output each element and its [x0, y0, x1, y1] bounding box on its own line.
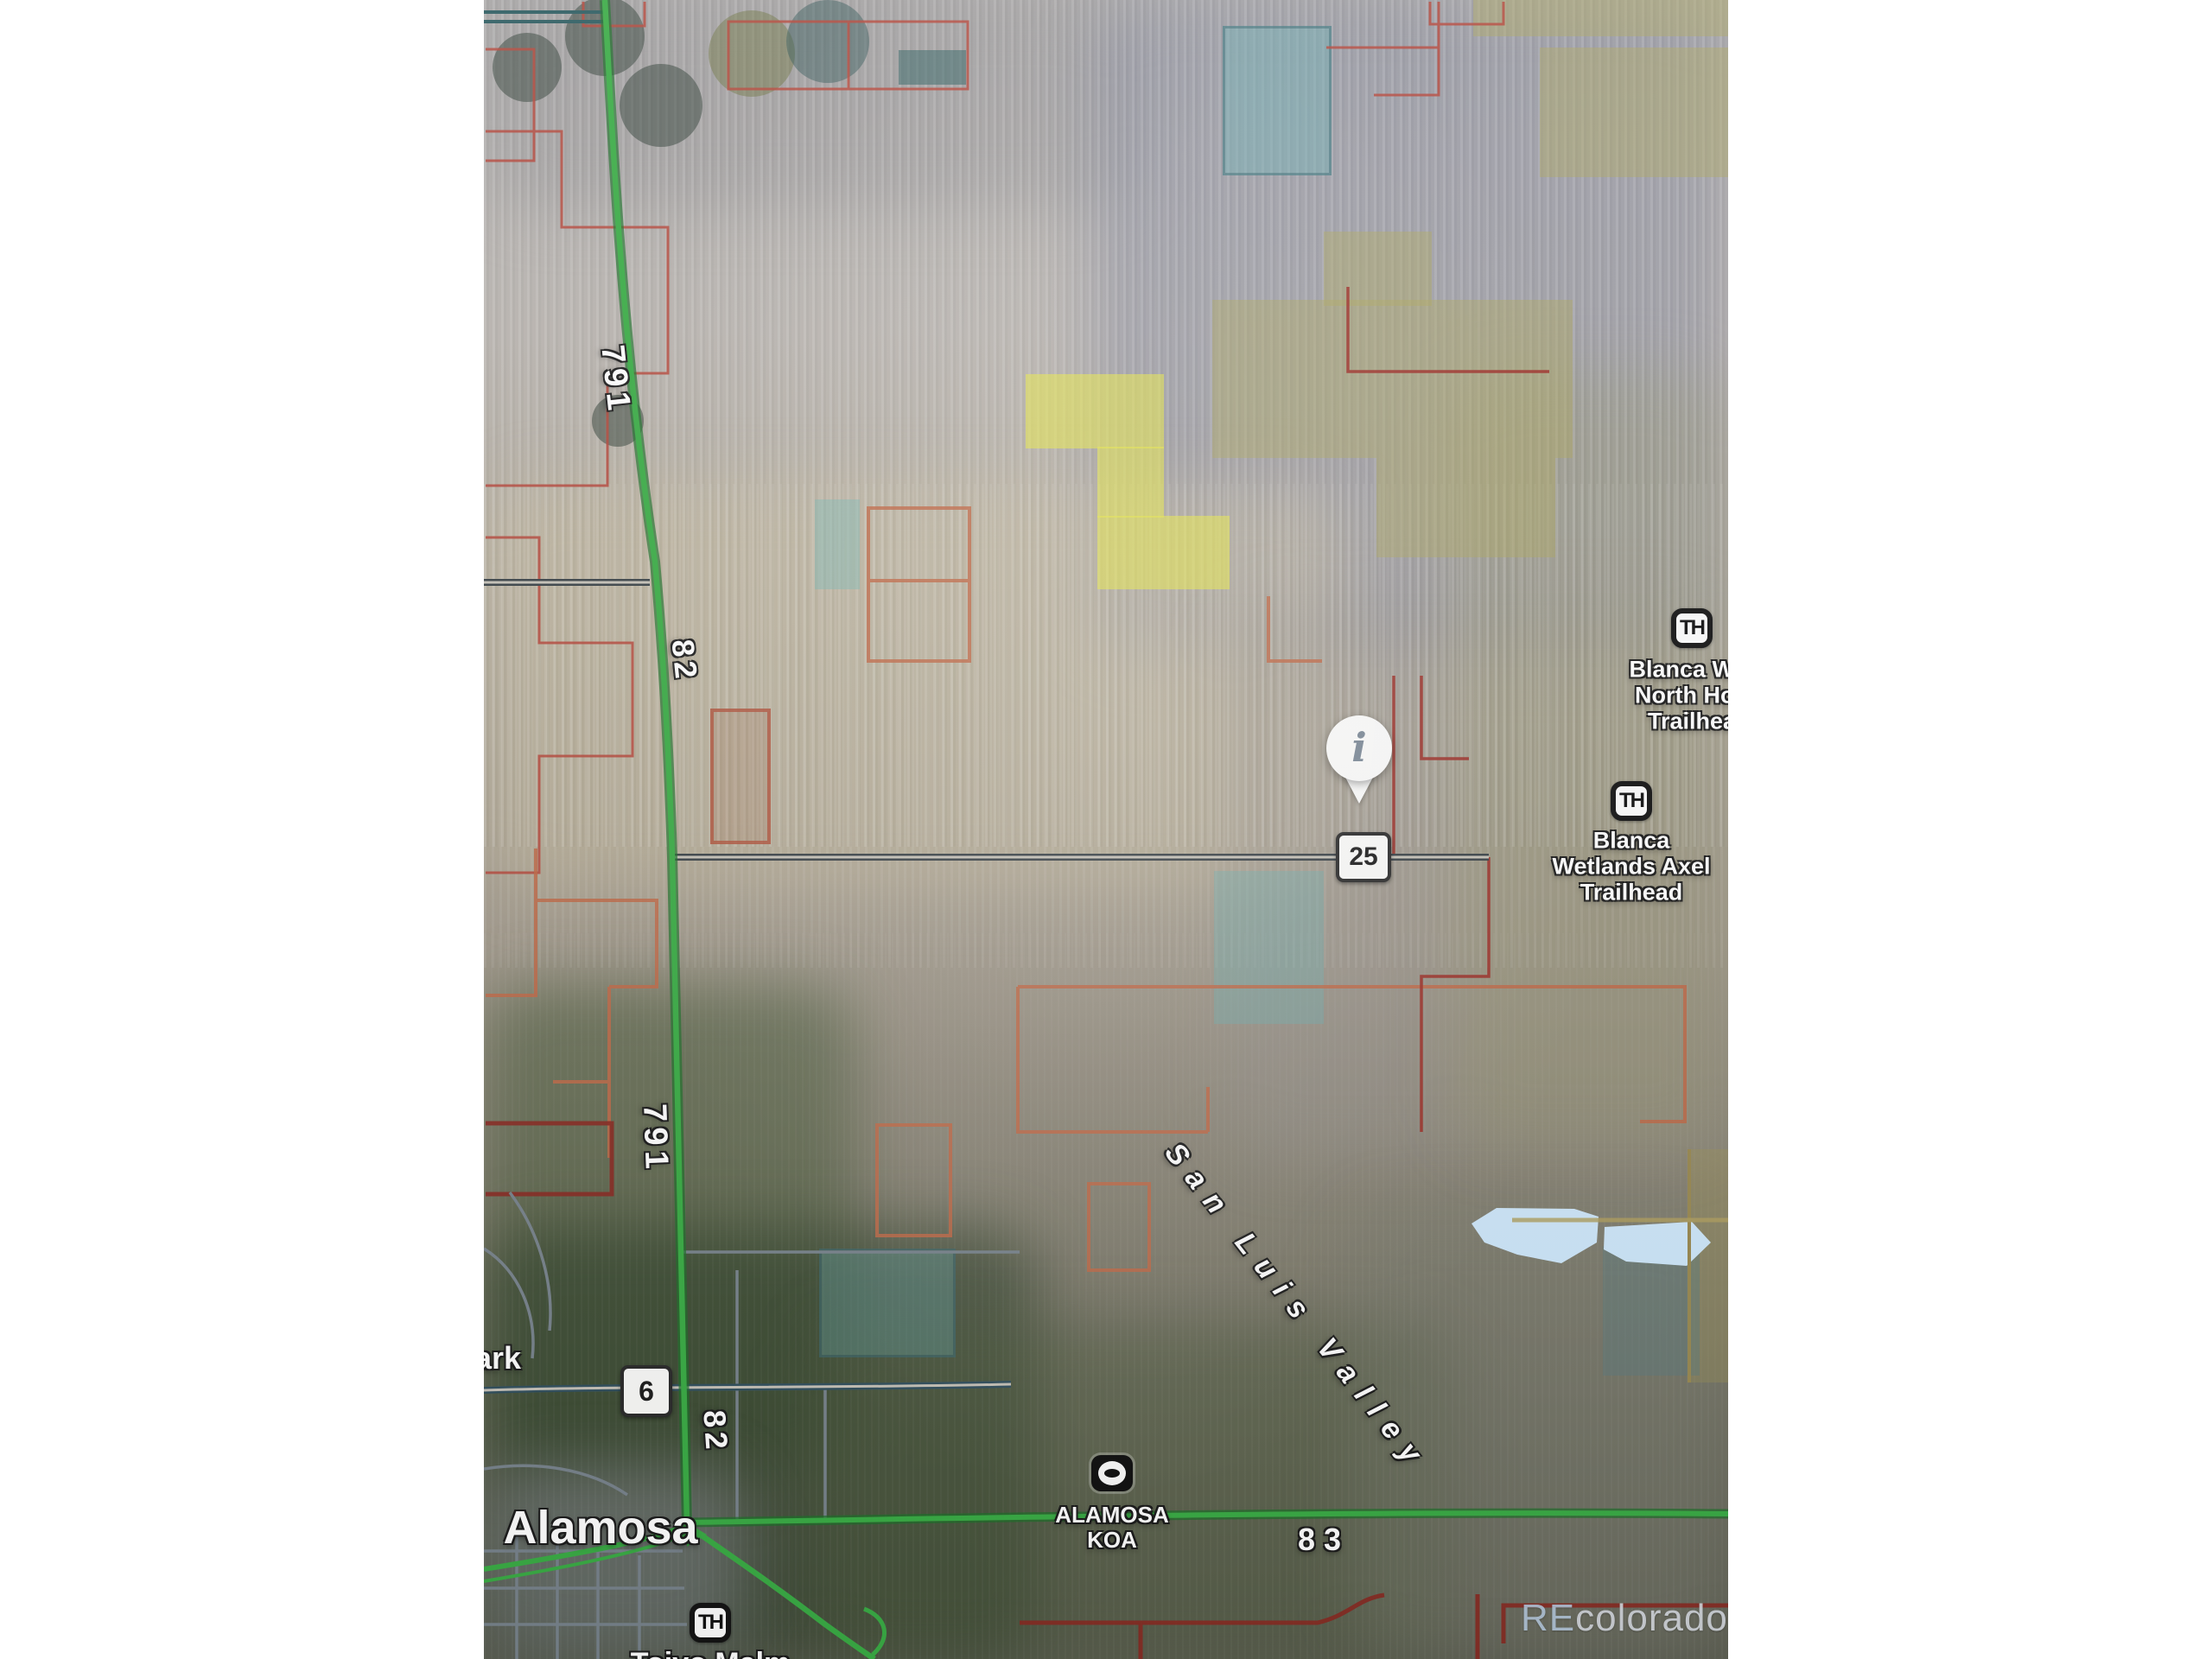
road-label-791-lower: 791 [635, 1103, 675, 1175]
overlay-teal-6 [1603, 1246, 1700, 1376]
crop-circle [620, 64, 702, 147]
recolorado-watermark: REcolorado [1521, 1597, 1728, 1640]
watermark-colorado: colorado [1575, 1597, 1728, 1639]
overlay-teal-4 [819, 1249, 956, 1357]
overlay-teal-1 [1223, 26, 1332, 175]
overlay-khaki-2 [1540, 48, 1728, 177]
overlay-khaki-5 [1376, 458, 1555, 557]
road-label-791-upper: 791 [593, 343, 637, 416]
map-canvas[interactable]: 791 82 791 82 83 25 6 San Luis Valley Al… [484, 0, 1728, 1659]
crop-circles [493, 0, 869, 447]
koa-campground-icon[interactable] [1091, 1455, 1133, 1491]
koa-label: ALAMOSA KOA [1055, 1503, 1168, 1553]
road-791-82-green [605, 0, 687, 1525]
overlay-khaki-3 [1324, 232, 1432, 306]
overlay-yellow-3 [1097, 516, 1230, 589]
trailhead-label-north-horn: Blanca Wet North Hon Trailhea [1629, 657, 1728, 735]
trailhead-label-axel: Blanca Wetlands Axel Trailhead [1552, 828, 1710, 906]
crop-circle [565, 0, 645, 76]
overlay-teal-2 [815, 499, 860, 589]
road-83-green [687, 1220, 1728, 1522]
road-shield-25: 25 [1336, 832, 1391, 882]
terrain-mid-tan [484, 484, 1348, 890]
watermark-re: RE [1521, 1597, 1575, 1639]
terrain-top-right-blue [1089, 0, 1728, 657]
trailhead-badge-north-horn[interactable]: TH [1671, 608, 1713, 648]
info-pin-marker[interactable]: i [1325, 715, 1394, 805]
overlay-teal-5 [899, 50, 966, 85]
street-grid [484, 1192, 1020, 1659]
terrain-top-left [484, 0, 1141, 207]
overlay-yellow-2 [1097, 447, 1164, 518]
overlay-yellow-1 [1026, 374, 1164, 448]
terrain-right-olive-band [1452, 372, 1728, 1149]
overlay-khaki-4 [1212, 300, 1573, 458]
region-label-san-luis-valley: San Luis Valley [1158, 1136, 1436, 1479]
screenshot-stage: 791 82 791 82 83 25 6 San Luis Valley Al… [0, 0, 2212, 1659]
field-stripe-texture-mid [484, 484, 1728, 968]
road-label-82-lower: 82 [696, 1409, 734, 1455]
lake [1471, 1208, 1711, 1266]
info-icon: i [1325, 724, 1394, 771]
parcel-lines-crimson [1348, 287, 1549, 1132]
overlay-teal-3 [1214, 871, 1324, 1024]
trailhead-badge-axel[interactable]: TH [1611, 781, 1652, 821]
crop-circle [709, 10, 795, 97]
trailhead-label-toivo-malm: Toivo Malm [631, 1647, 791, 1659]
trailhead-badge-toivo-malm[interactable]: TH [690, 1603, 731, 1643]
overlay-khaki-1 [1473, 0, 1728, 36]
park-label-partial: ark [484, 1340, 521, 1376]
field-stripe-texture-top [484, 0, 1728, 847]
canal-line [484, 12, 607, 22]
road-label-83: 83 [1298, 1522, 1350, 1558]
road-label-82-upper: 82 [664, 638, 704, 684]
overlay-khaki-right-strip [1689, 1149, 1728, 1382]
terrain-left-darkgreen [484, 1227, 1037, 1659]
city-label-alamosa: Alamosa [503, 1501, 697, 1554]
crop-circle [786, 0, 869, 83]
road-shield-6: 6 [620, 1365, 672, 1417]
crop-circle [493, 33, 562, 102]
road-6 [484, 1384, 1011, 1390]
